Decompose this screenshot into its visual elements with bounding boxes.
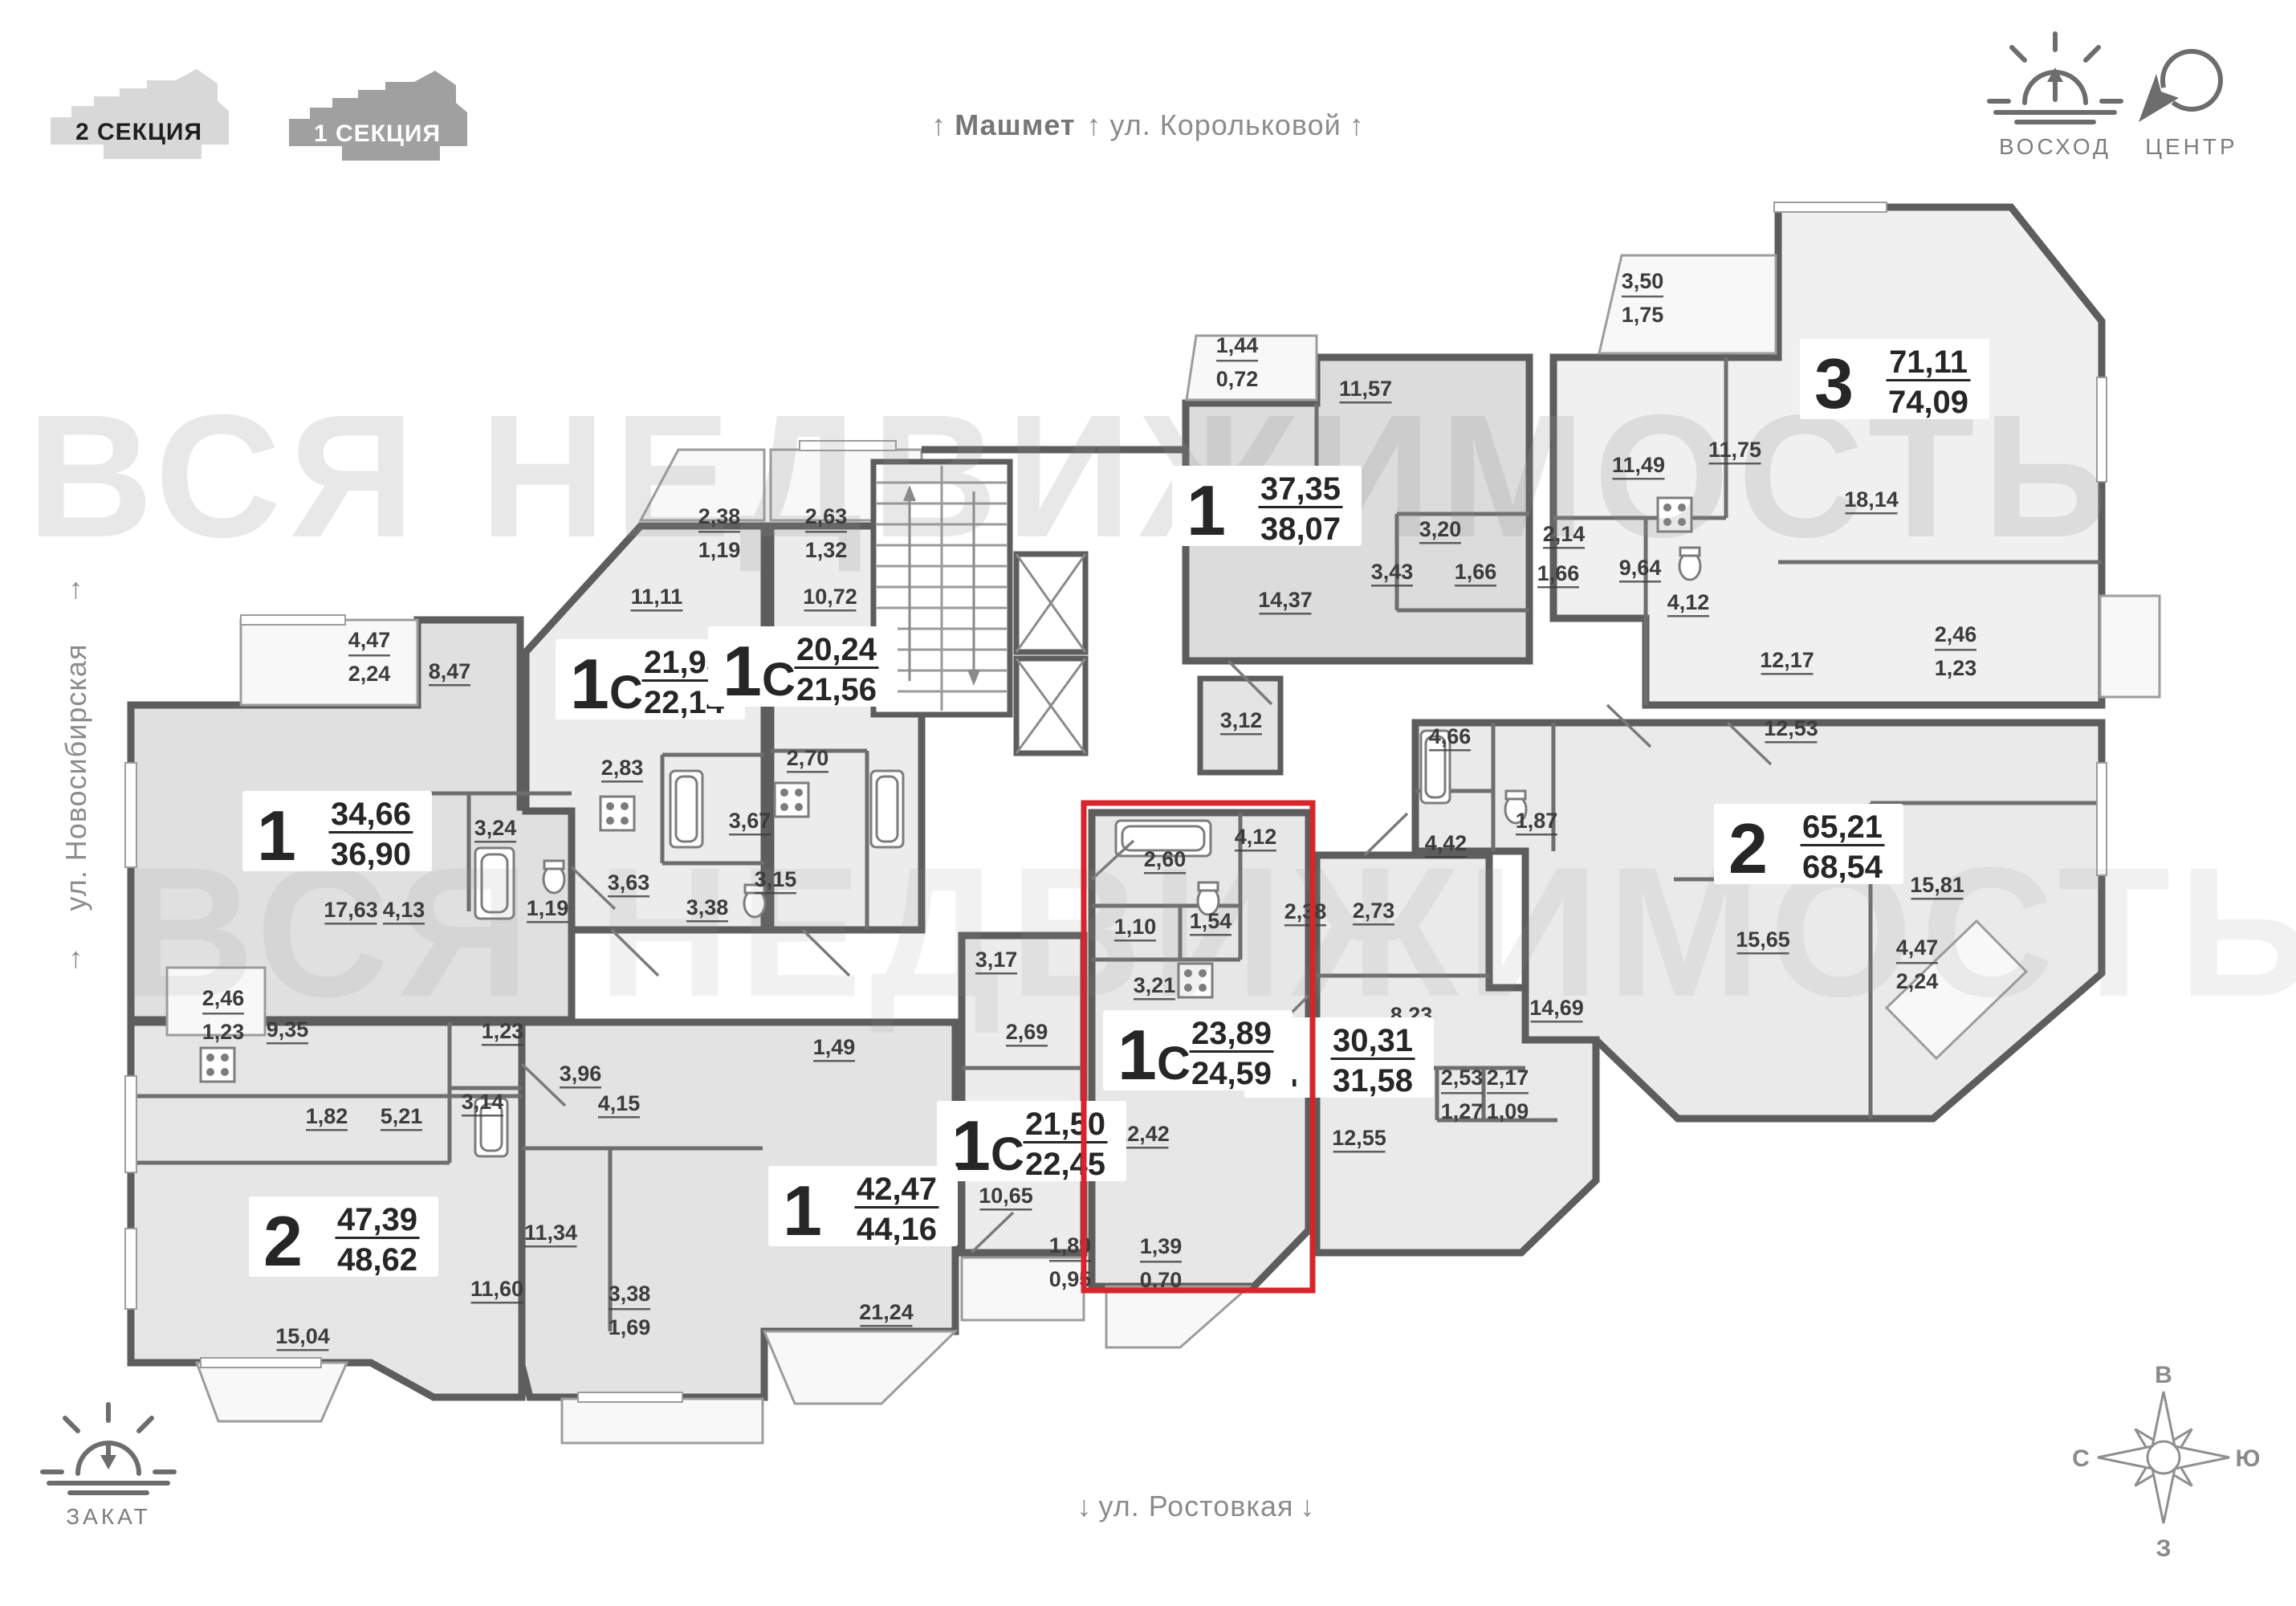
svg-text:15,81: 15,81 xyxy=(1910,873,1964,897)
room-area-label: 3,17 xyxy=(975,948,1018,975)
svg-text:0,72: 0,72 xyxy=(1216,367,1259,391)
room-area-label: 15,04 xyxy=(275,1324,330,1351)
apartment-area-total: 31,58 xyxy=(1333,1063,1413,1099)
svg-text:1,49: 1,49 xyxy=(813,1035,856,1059)
svg-text:4,13: 4,13 xyxy=(383,898,425,922)
room-area-label: 1,10 xyxy=(1114,915,1157,942)
section-badge-2[interactable]: 2 СЕКЦИЯ xyxy=(51,69,229,159)
room-area-label: 2,73 xyxy=(1353,899,1395,926)
svg-text:4,12: 4,12 xyxy=(1235,825,1277,849)
room-area-label: 21,24 xyxy=(859,1300,914,1327)
compass-south-label: З xyxy=(2156,1535,2172,1562)
up-arrow-icon: ↑ xyxy=(69,941,84,974)
svg-text:1,69: 1,69 xyxy=(609,1315,651,1339)
svg-text:10,72: 10,72 xyxy=(803,585,857,609)
svg-text:4,66: 4,66 xyxy=(1429,724,1472,748)
room-area-label: 1,66 xyxy=(1537,561,1580,589)
svg-text:11,75: 11,75 xyxy=(1708,438,1761,462)
svg-text:9,64: 9,64 xyxy=(1619,556,1662,580)
room-area-label: 9,35 xyxy=(267,1017,309,1045)
room-area-label: 2,69 xyxy=(1006,1020,1048,1047)
room-area-label: 11,34 xyxy=(524,1221,577,1248)
room-area-label: 3,14 xyxy=(462,1090,504,1117)
svg-text:4,42: 4,42 xyxy=(1425,831,1468,855)
svg-text:1,23: 1,23 xyxy=(202,1020,245,1044)
center-label: ЦЕНТР xyxy=(2145,134,2237,159)
apartment-rooms-count: 2 xyxy=(1728,809,1768,888)
svg-text:11,11: 11,11 xyxy=(631,585,683,609)
apartment-card[interactable]: 137,3538,07 xyxy=(1172,466,1362,550)
room-area-label: 12,17 xyxy=(1760,648,1814,675)
compass-east-label: Ю xyxy=(2236,1445,2261,1472)
room-area-label: 15,81 xyxy=(1910,873,1964,900)
svg-text:1,66: 1,66 xyxy=(1537,561,1580,585)
svg-text:3,24: 3,24 xyxy=(474,816,517,840)
room-area-label: 4,42 xyxy=(1425,831,1468,858)
svg-text:4,47: 4,47 xyxy=(348,628,391,652)
sunrise-icon xyxy=(1989,34,2121,122)
svg-text:15,04: 15,04 xyxy=(275,1324,330,1348)
stove-icon xyxy=(600,797,634,830)
svg-text:2,38: 2,38 xyxy=(698,504,741,528)
apartment-area-living: 34,66 xyxy=(331,797,411,832)
room-area-label: 4,66 xyxy=(1429,724,1472,752)
svg-text:1,66: 1,66 xyxy=(1455,560,1497,584)
svg-text:17,63: 17,63 xyxy=(324,898,378,922)
section-1-label: 1 СЕКЦИЯ xyxy=(314,120,441,147)
room-area-label: 3,38 xyxy=(686,895,729,923)
svg-text:3,50: 3,50 xyxy=(1622,269,1664,293)
svg-text:3,96: 3,96 xyxy=(560,1062,602,1086)
svg-text:8,47: 8,47 xyxy=(429,659,471,683)
room-area-label: 11,49 xyxy=(1612,453,1665,480)
apartment-area-total: 44,16 xyxy=(857,1212,937,1247)
apartment-area-total: 48,62 xyxy=(337,1242,417,1278)
stove-icon xyxy=(201,1048,234,1082)
room-area-label: 1,66 xyxy=(1455,560,1497,587)
street-label-left: ул. Новосибирская xyxy=(59,644,92,911)
svg-text:2,60: 2,60 xyxy=(1144,847,1187,871)
apartment-card[interactable]: 134,6636,90 xyxy=(242,791,432,875)
room-area-label: 4,12 xyxy=(1235,825,1277,852)
svg-text:21,24: 21,24 xyxy=(859,1300,914,1324)
room-area-label: 11,75 xyxy=(1708,438,1761,465)
room-area-label: 3,67 xyxy=(729,809,771,836)
svg-text:1,19: 1,19 xyxy=(698,538,741,562)
sunset-icon xyxy=(43,1404,174,1493)
svg-text:2,46: 2,46 xyxy=(1935,622,1977,646)
compass-west-label: С xyxy=(2072,1445,2090,1472)
apartment-area-total: 74,09 xyxy=(1888,385,1968,420)
svg-text:2,70: 2,70 xyxy=(787,746,829,770)
apartment-card-highlighted[interactable]: 1С23,8924,59 xyxy=(1103,1010,1293,1094)
svg-text:3,15: 3,15 xyxy=(755,867,797,891)
room-area-label: 2,14 xyxy=(1543,522,1586,549)
svg-text:3,17: 3,17 xyxy=(975,948,1018,972)
room-area-label: 10,72 xyxy=(803,585,857,612)
up-arrow-icon: ↑ xyxy=(69,572,84,605)
svg-text:3,38: 3,38 xyxy=(609,1282,651,1306)
section-2-label: 2 СЕКЦИЯ xyxy=(75,119,202,145)
svg-text:1,39: 1,39 xyxy=(1140,1234,1183,1258)
section-2-shape xyxy=(51,69,229,159)
sunset-label: ЗАКАТ xyxy=(66,1504,151,1529)
svg-text:1,87: 1,87 xyxy=(1516,809,1558,833)
up-arrow-icon: ↑ xyxy=(931,108,946,141)
svg-text:10,65: 10,65 xyxy=(979,1184,1033,1208)
apartment-area-living: 37,35 xyxy=(1260,471,1341,507)
svg-text:1,32: 1,32 xyxy=(805,538,848,562)
room-area-label: 4,15 xyxy=(598,1091,641,1119)
svg-text:2,73: 2,73 xyxy=(1353,899,1395,923)
svg-text:1,75: 1,75 xyxy=(1622,303,1664,327)
street-label-top: ↑Машмет↑ул. Корольковой↑ xyxy=(931,108,1365,141)
compass-rose-icon xyxy=(2098,1392,2229,1523)
room-area-label: 15,65 xyxy=(1736,927,1790,955)
room-area-label: 1,82 xyxy=(306,1104,348,1131)
svg-text:1,23: 1,23 xyxy=(1935,656,1977,680)
room-area-label: 1,49 xyxy=(813,1035,856,1062)
svg-text:1,44: 1,44 xyxy=(1216,333,1259,357)
room-area-label: 11,57 xyxy=(1339,377,1392,404)
room-area-label: 3,24 xyxy=(474,816,517,843)
svg-text:11,49: 11,49 xyxy=(1612,453,1665,477)
svg-text:5,21: 5,21 xyxy=(381,1104,423,1128)
room-area-label: 2,38 xyxy=(1284,899,1327,927)
room-area-label: 3,15 xyxy=(755,867,797,895)
svg-text:3,12: 3,12 xyxy=(1220,708,1263,732)
svg-text:2,14: 2,14 xyxy=(1543,522,1586,546)
room-area-label: 4,12 xyxy=(1667,590,1710,618)
svg-text:14,69: 14,69 xyxy=(1529,996,1584,1020)
room-area-label: 18,14 xyxy=(1844,487,1899,515)
apartment-area-total: 36,90 xyxy=(331,837,411,872)
room-area-label: 11,11 xyxy=(631,585,683,612)
svg-text:4,15: 4,15 xyxy=(598,1091,641,1115)
section-1-shape xyxy=(289,71,467,161)
apartment-rooms-count: 1 xyxy=(257,796,296,875)
svg-text:12,53: 12,53 xyxy=(1764,716,1818,740)
room-area-label: 12,55 xyxy=(1332,1126,1386,1153)
apartment-area-living: 65,21 xyxy=(1802,809,1883,845)
svg-text:14,37: 14,37 xyxy=(1258,588,1313,612)
apartment-area-living: 30,31 xyxy=(1333,1023,1413,1058)
apartment-card[interactable]: 1С21,5022,45 xyxy=(937,1101,1126,1185)
svg-text:1,23: 1,23 xyxy=(482,1019,524,1043)
room-area-label: 1,19 xyxy=(527,896,569,923)
room-area-label: 10,65 xyxy=(979,1184,1033,1211)
down-arrow-icon: ↓ xyxy=(1300,1490,1315,1522)
svg-text:2,63: 2,63 xyxy=(805,504,848,528)
section-badge-1[interactable]: 1 СЕКЦИЯ xyxy=(289,71,467,161)
svg-text:2,46: 2,46 xyxy=(202,986,245,1010)
room-area-label: 12,53 xyxy=(1764,716,1818,744)
room-area-label: 3,96 xyxy=(560,1062,602,1089)
stove-icon xyxy=(775,783,808,817)
room-area-label: 8,47 xyxy=(429,659,471,687)
up-arrow-icon: ↑ xyxy=(1087,108,1102,141)
apartment-area-total: 68,54 xyxy=(1802,850,1883,885)
svg-text:15,65: 15,65 xyxy=(1736,927,1790,952)
floor-plan: ВСЯ НЕДВИЖИМОСТЬ ВСЯ НЕДВИЖИМОСТЬ 8,4717… xyxy=(0,0,2296,1606)
apartment-area-living: 47,39 xyxy=(337,1202,417,1237)
room-area-label: 1,23 xyxy=(482,1019,524,1046)
street-label-bottom: ↓ул. Ростовкая↓ xyxy=(1077,1490,1316,1522)
svg-text:3,21: 3,21 xyxy=(1134,973,1176,997)
apartment-rooms-count: 1 xyxy=(783,1171,822,1250)
apartment-rooms-count: 1 xyxy=(1187,471,1226,550)
svg-text:2,17: 2,17 xyxy=(1487,1066,1529,1090)
svg-text:1,09: 1,09 xyxy=(1487,1099,1529,1123)
svg-text:4,12: 4,12 xyxy=(1667,590,1710,614)
apartment-area-living: 21,50 xyxy=(1025,1107,1105,1142)
svg-text:2,69: 2,69 xyxy=(1006,1020,1048,1044)
svg-text:11,57: 11,57 xyxy=(1339,377,1392,401)
svg-text:2,38: 2,38 xyxy=(1284,899,1327,923)
room-area-label: 2,83 xyxy=(601,756,644,783)
svg-text:3,38: 3,38 xyxy=(686,895,729,919)
apartment-rooms-count: 2 xyxy=(263,1201,303,1281)
svg-text:1,54: 1,54 xyxy=(1190,909,1232,933)
svg-text:18,14: 18,14 xyxy=(1844,487,1899,512)
svg-text:2,83: 2,83 xyxy=(601,756,644,780)
svg-text:12,17: 12,17 xyxy=(1760,648,1814,672)
sunrise-label: ВОСХОД xyxy=(1999,134,2111,159)
svg-text:1,19: 1,19 xyxy=(527,896,569,920)
svg-text:2,24: 2,24 xyxy=(348,662,391,686)
room-area-label: 9,64 xyxy=(1619,556,1662,583)
apartment-card[interactable]: 1С20,2421,56 xyxy=(708,626,898,711)
room-area-label: 4,13 xyxy=(383,898,425,925)
svg-text:1,10: 1,10 xyxy=(1114,915,1157,939)
room-area-label: 3,12 xyxy=(1220,708,1263,736)
svg-text:2,24: 2,24 xyxy=(1896,969,1939,993)
down-arrow-icon: ↓ xyxy=(1077,1490,1093,1522)
room-area-label: 2,70 xyxy=(787,746,829,773)
compass-north-label: В xyxy=(2155,1362,2172,1388)
apartment-card[interactable]: 265,2168,54 xyxy=(1714,804,1903,888)
svg-text:1,82: 1,82 xyxy=(306,1104,348,1128)
room-area-label: 3,43 xyxy=(1371,560,1414,587)
svg-text:9,35: 9,35 xyxy=(267,1017,309,1041)
center-direction-icon xyxy=(2139,51,2221,122)
room-area-label: 3,21 xyxy=(1134,973,1176,1001)
apartment-card[interactable]: 247,3948,62 xyxy=(249,1196,438,1281)
apartment-rooms-count: 3 xyxy=(1814,344,1854,423)
svg-text:3,14: 3,14 xyxy=(462,1090,504,1114)
svg-text:1,27: 1,27 xyxy=(1441,1099,1484,1123)
svg-text:3,20: 3,20 xyxy=(1419,517,1462,541)
svg-text:3,63: 3,63 xyxy=(608,870,650,895)
room-area-label: 1,87 xyxy=(1516,809,1558,836)
room-area-label: 5,21 xyxy=(381,1104,423,1131)
room-area-label: 14,69 xyxy=(1529,996,1584,1023)
apartment-area-total: 21,56 xyxy=(796,672,877,707)
room-area-label: 3,63 xyxy=(608,870,650,898)
apartment-area-total: 22,45 xyxy=(1025,1147,1105,1182)
apartment-area-total: 24,59 xyxy=(1191,1056,1272,1091)
svg-text:2,53: 2,53 xyxy=(1441,1066,1484,1090)
svg-text:11,60: 11,60 xyxy=(470,1277,523,1301)
apartment-area-living: 20,24 xyxy=(796,632,877,667)
svg-text:12,55: 12,55 xyxy=(1332,1126,1386,1150)
up-arrow-icon: ↑ xyxy=(1350,108,1365,141)
svg-text:3,67: 3,67 xyxy=(729,809,771,833)
svg-text:11,34: 11,34 xyxy=(524,1221,577,1245)
apartment-card[interactable]: 142,4744,16 xyxy=(768,1166,958,1250)
apartment-area-living: 23,89 xyxy=(1191,1016,1272,1051)
room-area-label: 14,37 xyxy=(1258,588,1313,615)
apartment-area-total: 38,07 xyxy=(1260,512,1341,547)
apartment-area-living: 71,11 xyxy=(1889,344,1968,380)
apartment-card[interactable]: 371,1174,09 xyxy=(1800,339,1989,423)
room-area-label: 2,60 xyxy=(1144,847,1187,874)
svg-text:4,47: 4,47 xyxy=(1896,935,1939,960)
svg-text:3,43: 3,43 xyxy=(1371,560,1414,584)
room-area-label: 1,54 xyxy=(1190,909,1232,936)
apartment-area-living: 42,47 xyxy=(857,1172,937,1207)
room-area-label: 17,63 xyxy=(324,898,378,925)
room-area-label: 3,20 xyxy=(1419,517,1462,544)
room-area-label: 11,60 xyxy=(470,1277,523,1304)
